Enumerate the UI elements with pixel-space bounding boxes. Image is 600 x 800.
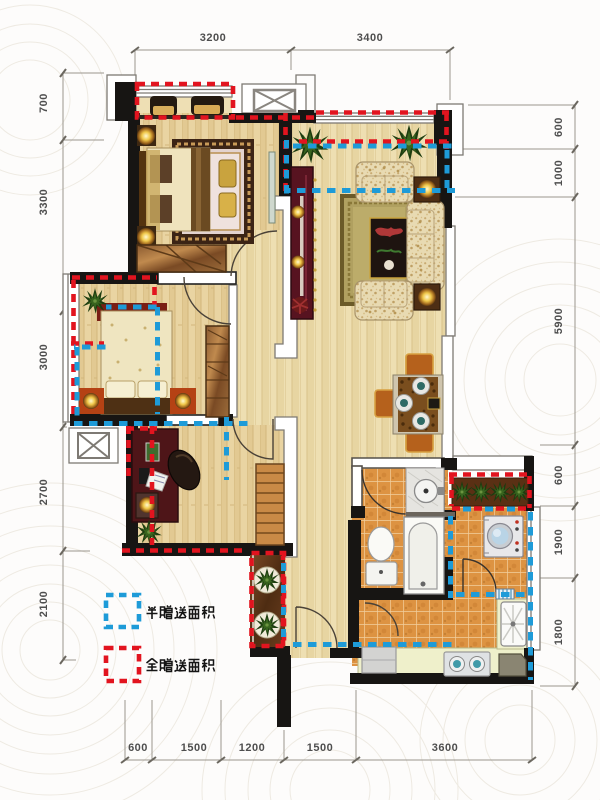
svg-text:1800: 1800 [553, 619, 565, 645]
svg-text:5900: 5900 [553, 308, 565, 334]
svg-text:1000: 1000 [553, 160, 565, 186]
svg-text:3300: 3300 [38, 189, 50, 215]
svg-text:3000: 3000 [38, 344, 50, 370]
svg-text:1500: 1500 [181, 742, 207, 754]
svg-text:2700: 2700 [38, 479, 50, 505]
svg-text:1500: 1500 [307, 742, 333, 754]
svg-text:700: 700 [38, 93, 50, 113]
svg-text:1900: 1900 [553, 529, 565, 555]
svg-text:2100: 2100 [38, 591, 50, 617]
svg-text:600: 600 [553, 117, 565, 137]
svg-text:600: 600 [128, 742, 148, 754]
svg-text:1200: 1200 [239, 742, 265, 754]
svg-text:600: 600 [553, 465, 565, 485]
svg-text:3400: 3400 [357, 32, 383, 44]
svg-text:3200: 3200 [200, 32, 226, 44]
svg-text:3600: 3600 [432, 742, 458, 754]
